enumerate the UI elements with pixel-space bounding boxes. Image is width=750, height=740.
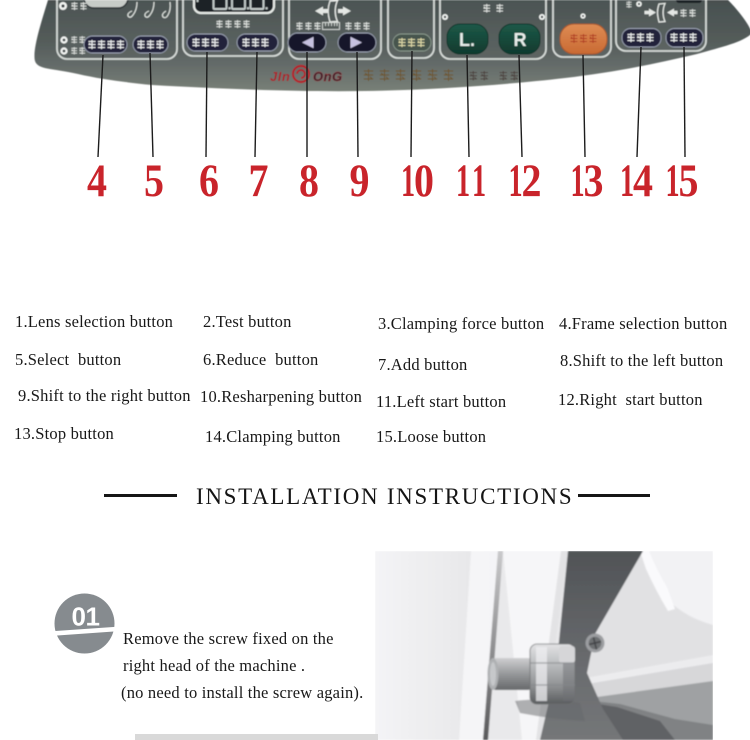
svg-text:4: 4 xyxy=(87,155,107,205)
svg-text:2: 2 xyxy=(522,155,542,205)
svg-text:1: 1 xyxy=(456,155,470,205)
svg-text:JIn: JIn xyxy=(270,69,290,84)
svg-text:7: 7 xyxy=(249,155,269,205)
svg-text:1: 1 xyxy=(508,155,522,205)
svg-text:L.: L. xyxy=(459,30,475,50)
svg-text:R: R xyxy=(514,30,527,50)
svg-text:1: 1 xyxy=(570,155,584,205)
svg-text:1: 1 xyxy=(665,155,679,205)
svg-text:5: 5 xyxy=(144,155,164,205)
svg-text:4: 4 xyxy=(633,155,653,205)
svg-text:1: 1 xyxy=(472,155,486,205)
svg-text:0: 0 xyxy=(414,155,434,205)
svg-text:5: 5 xyxy=(679,155,699,205)
svg-text:1: 1 xyxy=(401,155,415,205)
svg-text:OnG: OnG xyxy=(313,69,343,84)
svg-text:6: 6 xyxy=(199,155,219,205)
svg-text:9: 9 xyxy=(350,155,370,205)
svg-text:01: 01 xyxy=(72,602,100,632)
svg-text:8: 8 xyxy=(299,155,319,205)
svg-text:3: 3 xyxy=(584,155,604,205)
svg-text:1: 1 xyxy=(620,155,634,205)
